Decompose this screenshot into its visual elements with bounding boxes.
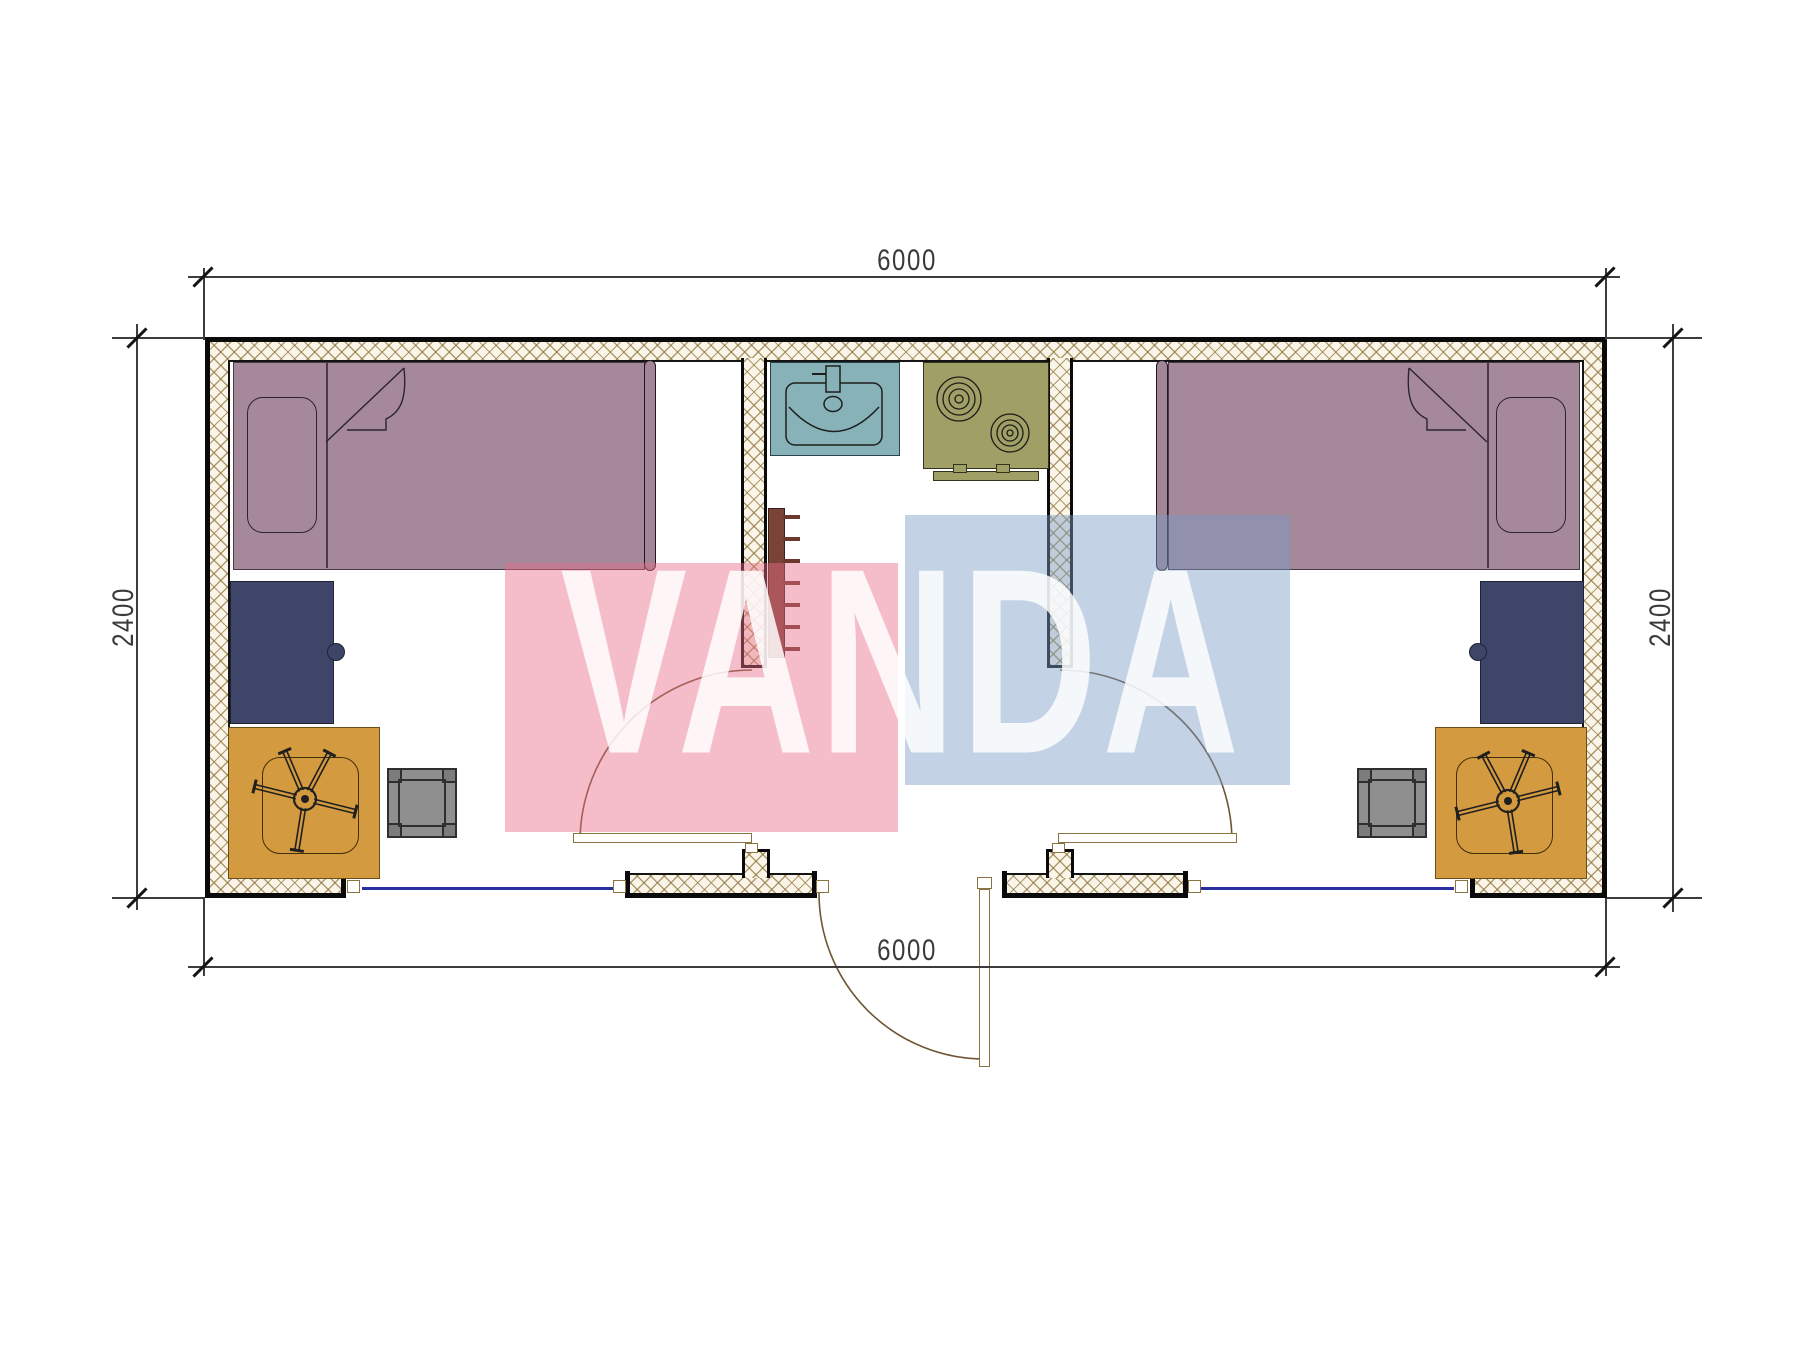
door-frame-notch — [1188, 880, 1201, 893]
blanket-fold-left — [326, 368, 405, 442]
extension-line — [112, 897, 205, 899]
door-hinge-left-room — [745, 843, 758, 853]
door-leaf-right-room — [1058, 833, 1237, 843]
door-hinge-right-room — [1052, 843, 1065, 853]
door-frame-notch — [1455, 880, 1468, 893]
window-line-left — [362, 887, 614, 890]
floor-plan-canvas: VANDA 6000 6000 2400 2400 — [0, 0, 1800, 1350]
stove-burners — [937, 377, 1029, 452]
dimension-text-right: 2400 — [1644, 587, 1678, 647]
entrance-door-leaf — [979, 889, 990, 1067]
blanket-fold-right — [1408, 368, 1487, 442]
window-line-right — [1200, 887, 1454, 890]
dimension-text-top: 6000 — [877, 244, 937, 278]
door-frame-notch — [347, 880, 360, 893]
door-arc-entrance — [819, 893, 985, 1059]
extension-line — [1607, 897, 1702, 899]
door-frame-notch — [816, 880, 829, 893]
door-frame-notch — [613, 880, 626, 893]
sink-faucet — [826, 366, 840, 392]
entrance-door-hinge — [977, 877, 992, 889]
watermark-text: VANDA — [560, 529, 1243, 793]
extension-line — [1607, 337, 1702, 339]
door-leaf-left-room — [573, 833, 752, 843]
dimension-text-left: 2400 — [107, 587, 141, 647]
dimension-text-bottom: 6000 — [877, 934, 937, 968]
extension-line — [112, 337, 205, 339]
sink-drain — [824, 397, 842, 412]
